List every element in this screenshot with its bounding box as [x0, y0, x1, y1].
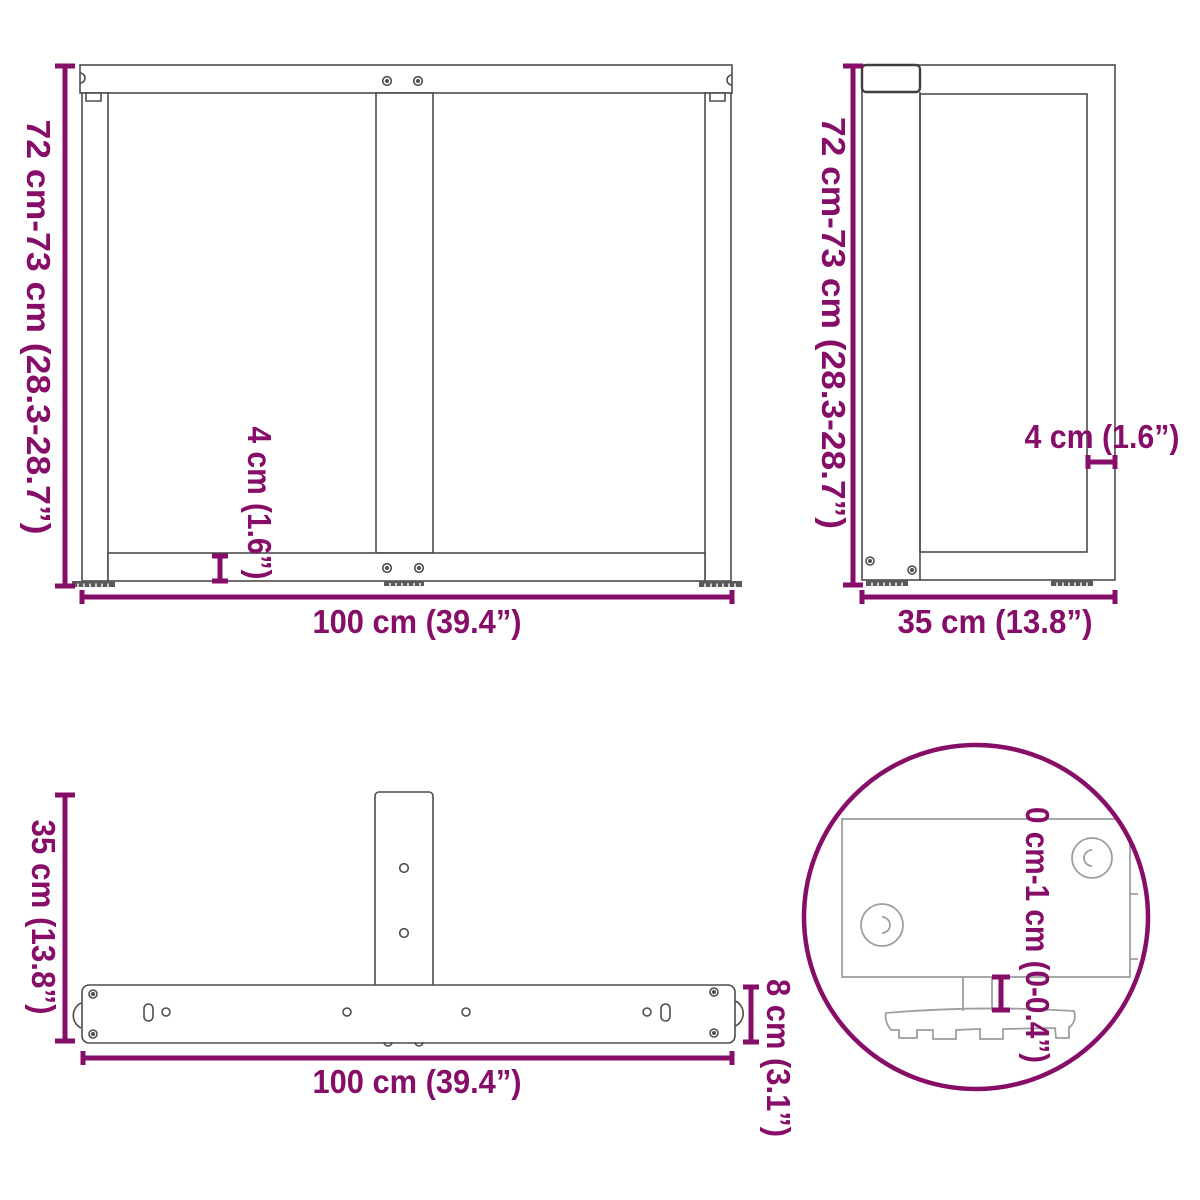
svg-text:72 cm-73 cm (28.3-28.7”): 72 cm-73 cm (28.3-28.7”): [814, 117, 851, 529]
svg-text:72 cm-73 cm (28.3-28.7”): 72 cm-73 cm (28.3-28.7”): [19, 120, 56, 535]
svg-text:100 cm (39.4”): 100 cm (39.4”): [313, 1064, 522, 1101]
svg-text:4 cm (1.6”): 4 cm (1.6”): [240, 427, 277, 580]
svg-text:35 cm (13.8”): 35 cm (13.8”): [24, 820, 61, 1015]
svg-text:35 cm (13.8”): 35 cm (13.8”): [898, 604, 1093, 641]
svg-text:0 cm-1 cm (0-0.4”): 0 cm-1 cm (0-0.4”): [1018, 807, 1055, 1063]
svg-text:8 cm (3.1”): 8 cm (3.1”): [759, 979, 796, 1137]
svg-text:4 cm (1.6”): 4 cm (1.6”): [1025, 419, 1180, 456]
svg-text:100 cm (39.4”): 100 cm (39.4”): [313, 604, 522, 641]
